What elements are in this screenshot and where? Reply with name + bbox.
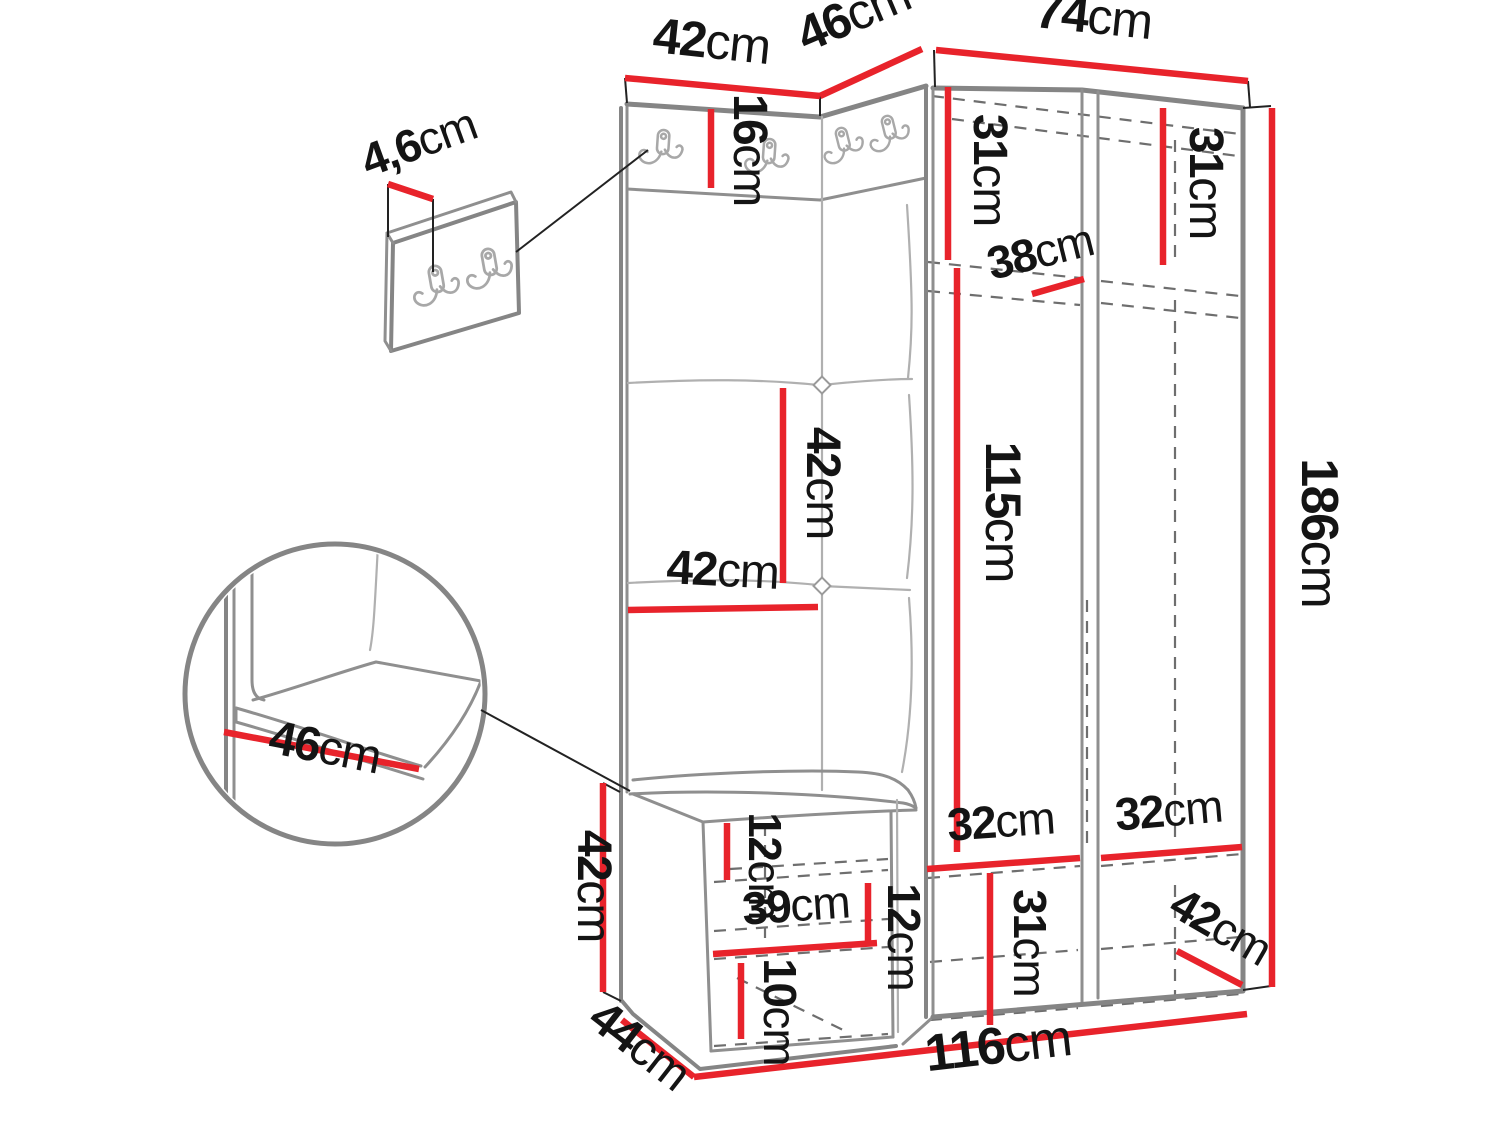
dim-label-hanging-height: 115cm (975, 442, 1031, 583)
dim-label-bench-shelf-gap: 12cm (878, 883, 930, 991)
dim-label-cushion-height: 42cm (796, 427, 849, 539)
dim-label-right-compartment: 32cm (1113, 779, 1225, 840)
dim-label-bottom-compartment: 31cm (1004, 889, 1056, 997)
dim-label-total-height: 186cm (1290, 458, 1348, 608)
dim-label-bench-opening-width: 39cm (740, 875, 851, 934)
dim-label-cushion-width: 42cm (665, 541, 780, 600)
dim-label-bench-height: 42cm (567, 830, 620, 942)
dim-line-cushion-width (628, 607, 818, 610)
dim-label-left-compartment: 32cm (945, 791, 1056, 850)
dim-label-hook-strip-height: 16cm (723, 94, 776, 206)
dimension-diagram: 42cm 46cm 74cm 16cm 4,6cm 31cm 31cm 38cm… (0, 0, 1500, 1125)
dim-label-bench-bottom-height: 10cm (754, 958, 806, 1066)
dim-label-right-top-shelf: 31cm (1179, 127, 1232, 239)
dim-label-left-top-shelf: 31cm (963, 114, 1016, 226)
